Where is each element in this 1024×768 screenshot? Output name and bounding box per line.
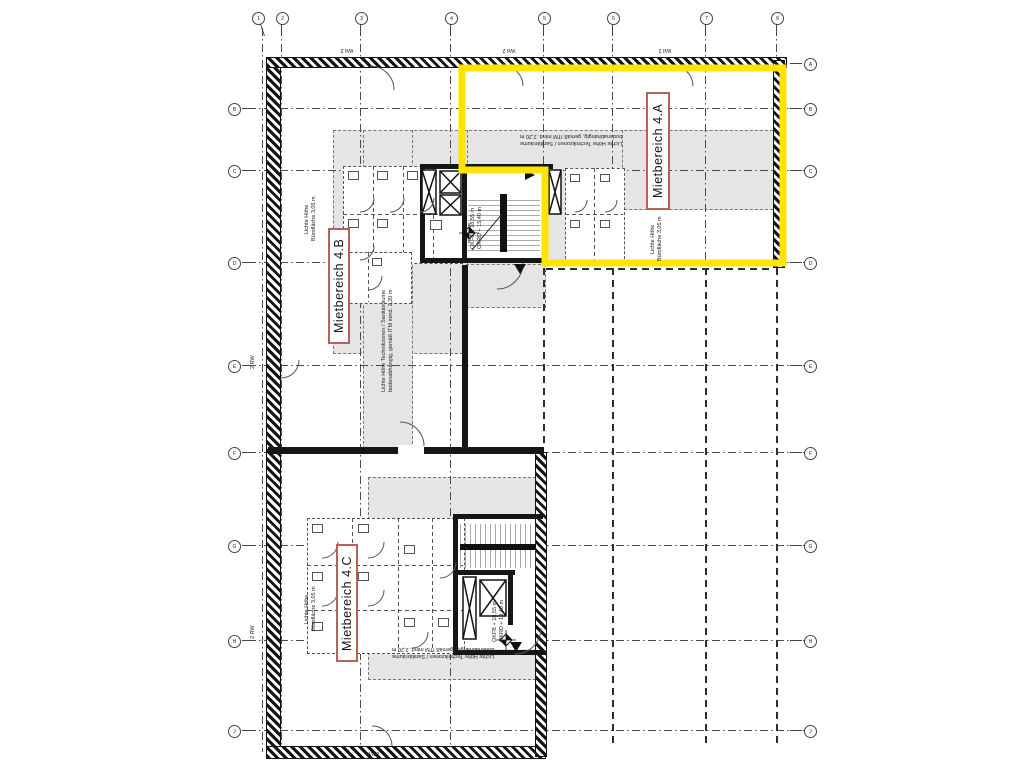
marker-label: 2 [281, 16, 284, 22]
wall-tag: Wd 2 [364, 752, 382, 759]
area-label-4a-text: Mietbereich 4.A [651, 104, 665, 198]
tech-note-top: Lichte Höhe Technikzonen / Sanitärräume … [496, 132, 646, 146]
grid-marker-left-4: E [228, 360, 241, 373]
grid-marker-right-1: A [804, 58, 817, 71]
grid-marker-top-6: 6 [607, 12, 620, 25]
grid-marker-right-5: E [804, 360, 817, 373]
grid-marker-left-1: B [228, 103, 241, 116]
grid-marker-right-4: D [804, 257, 817, 270]
area-label-4a: Mietbereich 4.A [646, 92, 670, 210]
level-note-lower: OKFB + 18,55 m OKRD + 18,40 m [492, 590, 506, 652]
grid-marker-top-4: 4 [445, 12, 458, 25]
level-note-line: OKRD + 18,40 m [499, 590, 506, 652]
tech-note-line: Lichte Höhe Technikzonen / Sanitärräume [381, 288, 388, 393]
office-note-line: Bürofläche 3,05 m [311, 188, 318, 250]
marker-label: E [809, 364, 812, 370]
area-label-4c: Mietbereich 4.C [336, 544, 358, 662]
marker-label: 1 [257, 16, 260, 22]
grid-marker-top-2: 2 [276, 12, 289, 25]
marker-label: D [809, 261, 813, 267]
grid-marker-left-5: F [228, 447, 241, 460]
grid-marker-left-2: C [228, 165, 241, 178]
marker-label: 7 [705, 16, 708, 22]
grid-marker-right-7: G [804, 540, 817, 553]
level-note-line: OKFB + 18,55 m [470, 196, 477, 260]
area-label-4b-text: Mietbereich 4.B [332, 239, 346, 333]
marker-label: 4 [450, 16, 453, 22]
office-note-line: Lichte Höhe [650, 208, 657, 270]
floor-plan: Mietbereich 4.A Mietbereich 4.B Mietbere… [0, 0, 1024, 768]
tech-note-line: bodenabhängig, gemäß ITM mind. 2,20 m [348, 645, 538, 652]
area-label-4c-text: Mietbereich 4.C [340, 555, 354, 650]
door-arrow [514, 264, 526, 274]
tech-note-line: Lichte Höhe Technikzonen / Sanitärräume [348, 652, 538, 659]
marker-label: F [233, 451, 236, 457]
grid-marker-right-3: C [804, 165, 817, 178]
level-note-line: OKRD + 15,40 m [477, 196, 484, 260]
stair-rail-upper [500, 194, 507, 252]
marker-label: H [233, 639, 237, 645]
office-note-line: Bürofläche 3,05 m [311, 578, 318, 640]
marker-label: D [233, 261, 237, 267]
tech-note-line: bodenabhängig, gemäß ITM mind. 2,20 m [388, 288, 395, 393]
marker-label: H [809, 639, 813, 645]
grid-marker-right-9: J [804, 725, 817, 738]
marker-label: G [233, 544, 237, 550]
marker-label: C [233, 169, 237, 175]
office-note-line: Bürofläche 3,05 m [657, 208, 664, 270]
grid-marker-top-5: 5 [538, 12, 551, 25]
grid-marker-top-7: 7 [700, 12, 713, 25]
office-note-4b: Lichte Höhe Bürofläche 3,05 m [304, 188, 318, 250]
riser-tag: 2 RW [250, 348, 257, 376]
wall-tag: Wd 2 [656, 46, 674, 53]
marker-label: 3 [360, 16, 363, 22]
marker-label: 6 [612, 16, 615, 22]
grid-marker-left-7: H [228, 635, 241, 648]
marker-label: E [233, 364, 236, 370]
grid-marker-right-2: B [804, 103, 817, 116]
tech-note-line: Lichte Höhe Technikzonen / Sanitärräume [496, 139, 646, 146]
grid-marker-left-8: J [228, 725, 241, 738]
grid-marker-top-1: 1 [252, 12, 265, 25]
wall-tag: Wd 2 [500, 46, 518, 53]
office-note-4c: Lichte Höhe Bürofläche 3,05 m [304, 578, 318, 640]
tech-note-bottom: Lichte Höhe Technikzonen / Sanitärräume … [348, 645, 538, 659]
grid-marker-left-6: G [228, 540, 241, 553]
tech-note-line: bodenabhängig, gemäß ITM mind. 2,20 m [496, 132, 646, 139]
marker-label: B [809, 107, 812, 113]
office-note-line: Lichte Höhe [304, 188, 311, 250]
marker-label: C [809, 169, 813, 175]
tech-note-corridor: Lichte Höhe Technikzonen / Sanitärräume … [381, 288, 395, 393]
marker-label: 5 [543, 16, 546, 22]
marker-label: F [809, 451, 812, 457]
grid-marker-left-3: D [228, 257, 241, 270]
marker-label: 8 [776, 16, 779, 22]
level-note-upper: OKFB + 18,55 m OKRD + 15,40 m [470, 196, 484, 260]
riser-tag: 2 RW [250, 618, 257, 646]
office-note-4a: Lichte Höhe Bürofläche 3,05 m [650, 208, 664, 270]
grid-marker-top-3: 3 [355, 12, 368, 25]
area-label-4b: Mietbereich 4.B [328, 228, 350, 344]
stair-rail-lower [460, 544, 536, 550]
office-note-line: Lichte Höhe [304, 578, 311, 640]
marker-label: J [233, 729, 236, 735]
grid-marker-right-6: F [804, 447, 817, 460]
marker-label: B [233, 107, 236, 113]
wall-tag: Wd 2 [338, 46, 356, 53]
marker-label: J [809, 729, 812, 735]
grid-marker-top-8: 8 [771, 12, 784, 25]
level-note-line: OKFB + 18,55 m [492, 590, 499, 652]
grid-marker-right-8: H [804, 635, 817, 648]
marker-label: A [809, 62, 812, 68]
marker-label: G [809, 544, 813, 550]
